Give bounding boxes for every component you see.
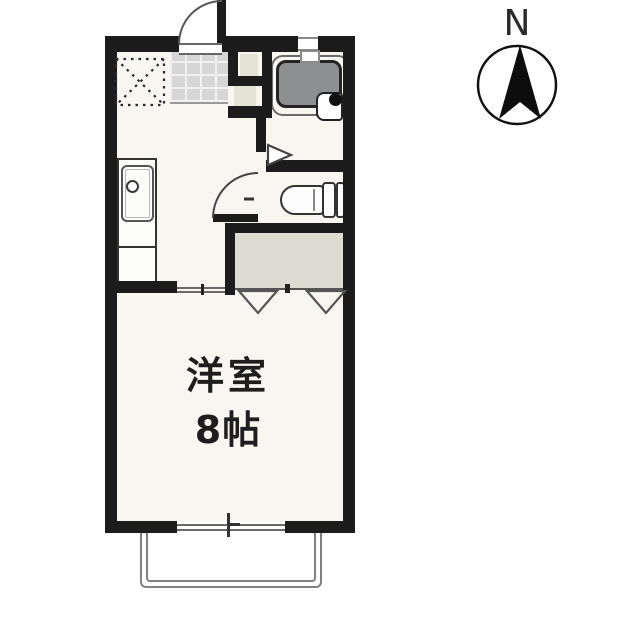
pipe-space-upper xyxy=(240,54,258,76)
north-label: N xyxy=(481,3,553,44)
bathroom-window-sill xyxy=(300,50,320,63)
closet-door-tick xyxy=(285,284,290,293)
wall-bathroom-left-lower xyxy=(256,118,266,152)
wall-step-bar-b xyxy=(228,106,268,118)
bathroom-window xyxy=(298,37,318,51)
floor-plan: 洋室 8帖 N xyxy=(0,0,626,640)
entrance-door-leaf xyxy=(217,0,226,45)
wall-bottom-left xyxy=(105,521,177,533)
kitchen-faucet-icon xyxy=(126,180,139,193)
bathroom-faucet-icon xyxy=(329,93,342,106)
wall-closet-top xyxy=(225,223,355,233)
wall-bathroom-bottom xyxy=(266,160,355,172)
entrance-threshold xyxy=(179,43,222,55)
toilet-door-leaf xyxy=(213,214,258,222)
room-name-label: 洋室 xyxy=(112,357,344,395)
genkan-tile-area xyxy=(170,52,228,104)
toilet-tank xyxy=(322,182,336,218)
toilet-bowl-detail xyxy=(313,189,315,211)
partition-door-tick xyxy=(201,284,204,295)
wall-bottom-right xyxy=(285,521,355,533)
wall-kitchen-stub xyxy=(105,281,177,293)
kitchen-counter-divider xyxy=(117,246,157,248)
wall-top-middle xyxy=(222,36,298,52)
room-size-label: 8帖 xyxy=(112,411,344,449)
kitchen-sink xyxy=(121,165,154,222)
balcony-inner-rail xyxy=(146,533,316,582)
pipe-space-lower xyxy=(234,86,256,106)
compass-north-icon xyxy=(478,45,556,124)
wall-top-right xyxy=(318,36,355,52)
closet-front-line xyxy=(235,288,345,290)
wall-right xyxy=(343,36,355,533)
toilet-bowl xyxy=(280,185,324,215)
entrance-door-swing-arc xyxy=(179,1,222,44)
window-latch-tick xyxy=(230,523,240,526)
wall-top-left xyxy=(105,36,179,52)
closet xyxy=(235,233,343,289)
wall-closet-left xyxy=(225,223,235,295)
wall-step-bar-a xyxy=(228,76,262,86)
